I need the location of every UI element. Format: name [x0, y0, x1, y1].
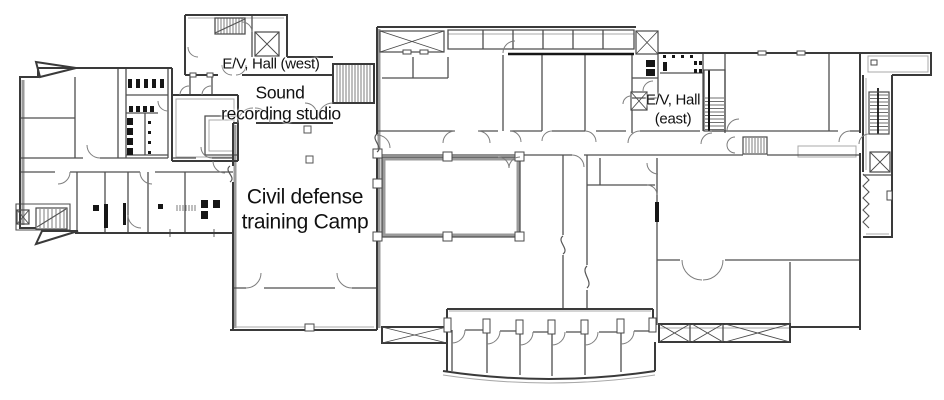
door-arcs — [58, 22, 869, 345]
label-ev-hall-west: E/V, Hall (west) — [222, 57, 319, 72]
label-sound-recording-line1: Sound — [255, 84, 304, 102]
floor-plan: E/V, Hall (west) Sound recording studio … — [0, 0, 944, 400]
building-outline — [20, 15, 931, 379]
label-civil-defense-line1: Civil defense — [247, 187, 363, 208]
label-ev-hall-east-line1: E/V, Hall — [646, 93, 700, 108]
label-sound-recording-line2: recording studio — [221, 105, 341, 123]
floor-plan-drawing — [0, 0, 944, 400]
label-ev-hall-east-line2: (east) — [655, 112, 692, 127]
interior-walls — [16, 15, 892, 376]
wall-shading — [23, 29, 518, 328]
label-civil-defense-line2: training Camp — [242, 212, 369, 233]
